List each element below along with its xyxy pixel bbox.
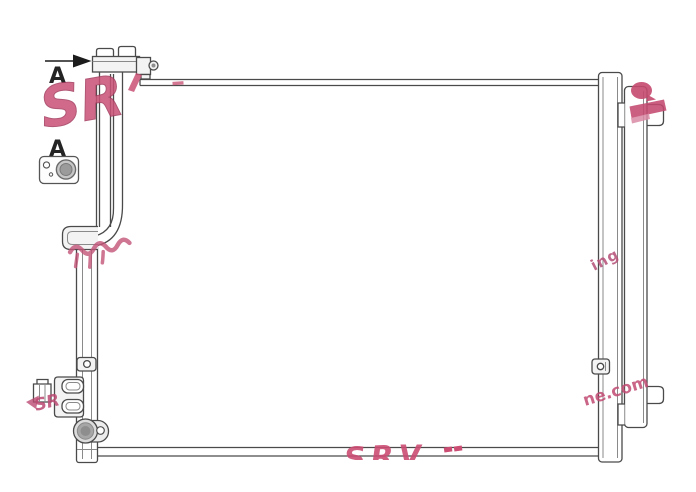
condenser-diagram: A A SR (0, 0, 696, 492)
parts-diagram-image: A A SR (0, 0, 696, 492)
watermark-sr-bottom: SRV (343, 438, 462, 477)
drier-left-tab-top (618, 103, 625, 127)
bracket-tab-right (119, 47, 136, 57)
port-fitting (74, 419, 109, 443)
watermark-sr-bottom-text: SRV (343, 438, 428, 477)
watermark-sr-main: SR (35, 63, 142, 142)
detail-small-port (43, 162, 49, 168)
lower-mount-clip (77, 358, 96, 372)
arrow-head (73, 55, 92, 68)
watermark-dash (172, 81, 183, 85)
drier-left-tab-bottom (618, 404, 625, 425)
bracket-tab-left (97, 49, 114, 58)
tank-mount-clip (592, 359, 610, 374)
port-bolt-hole (97, 427, 105, 435)
detail-view-a (40, 157, 79, 184)
condenser-core (97, 80, 600, 457)
